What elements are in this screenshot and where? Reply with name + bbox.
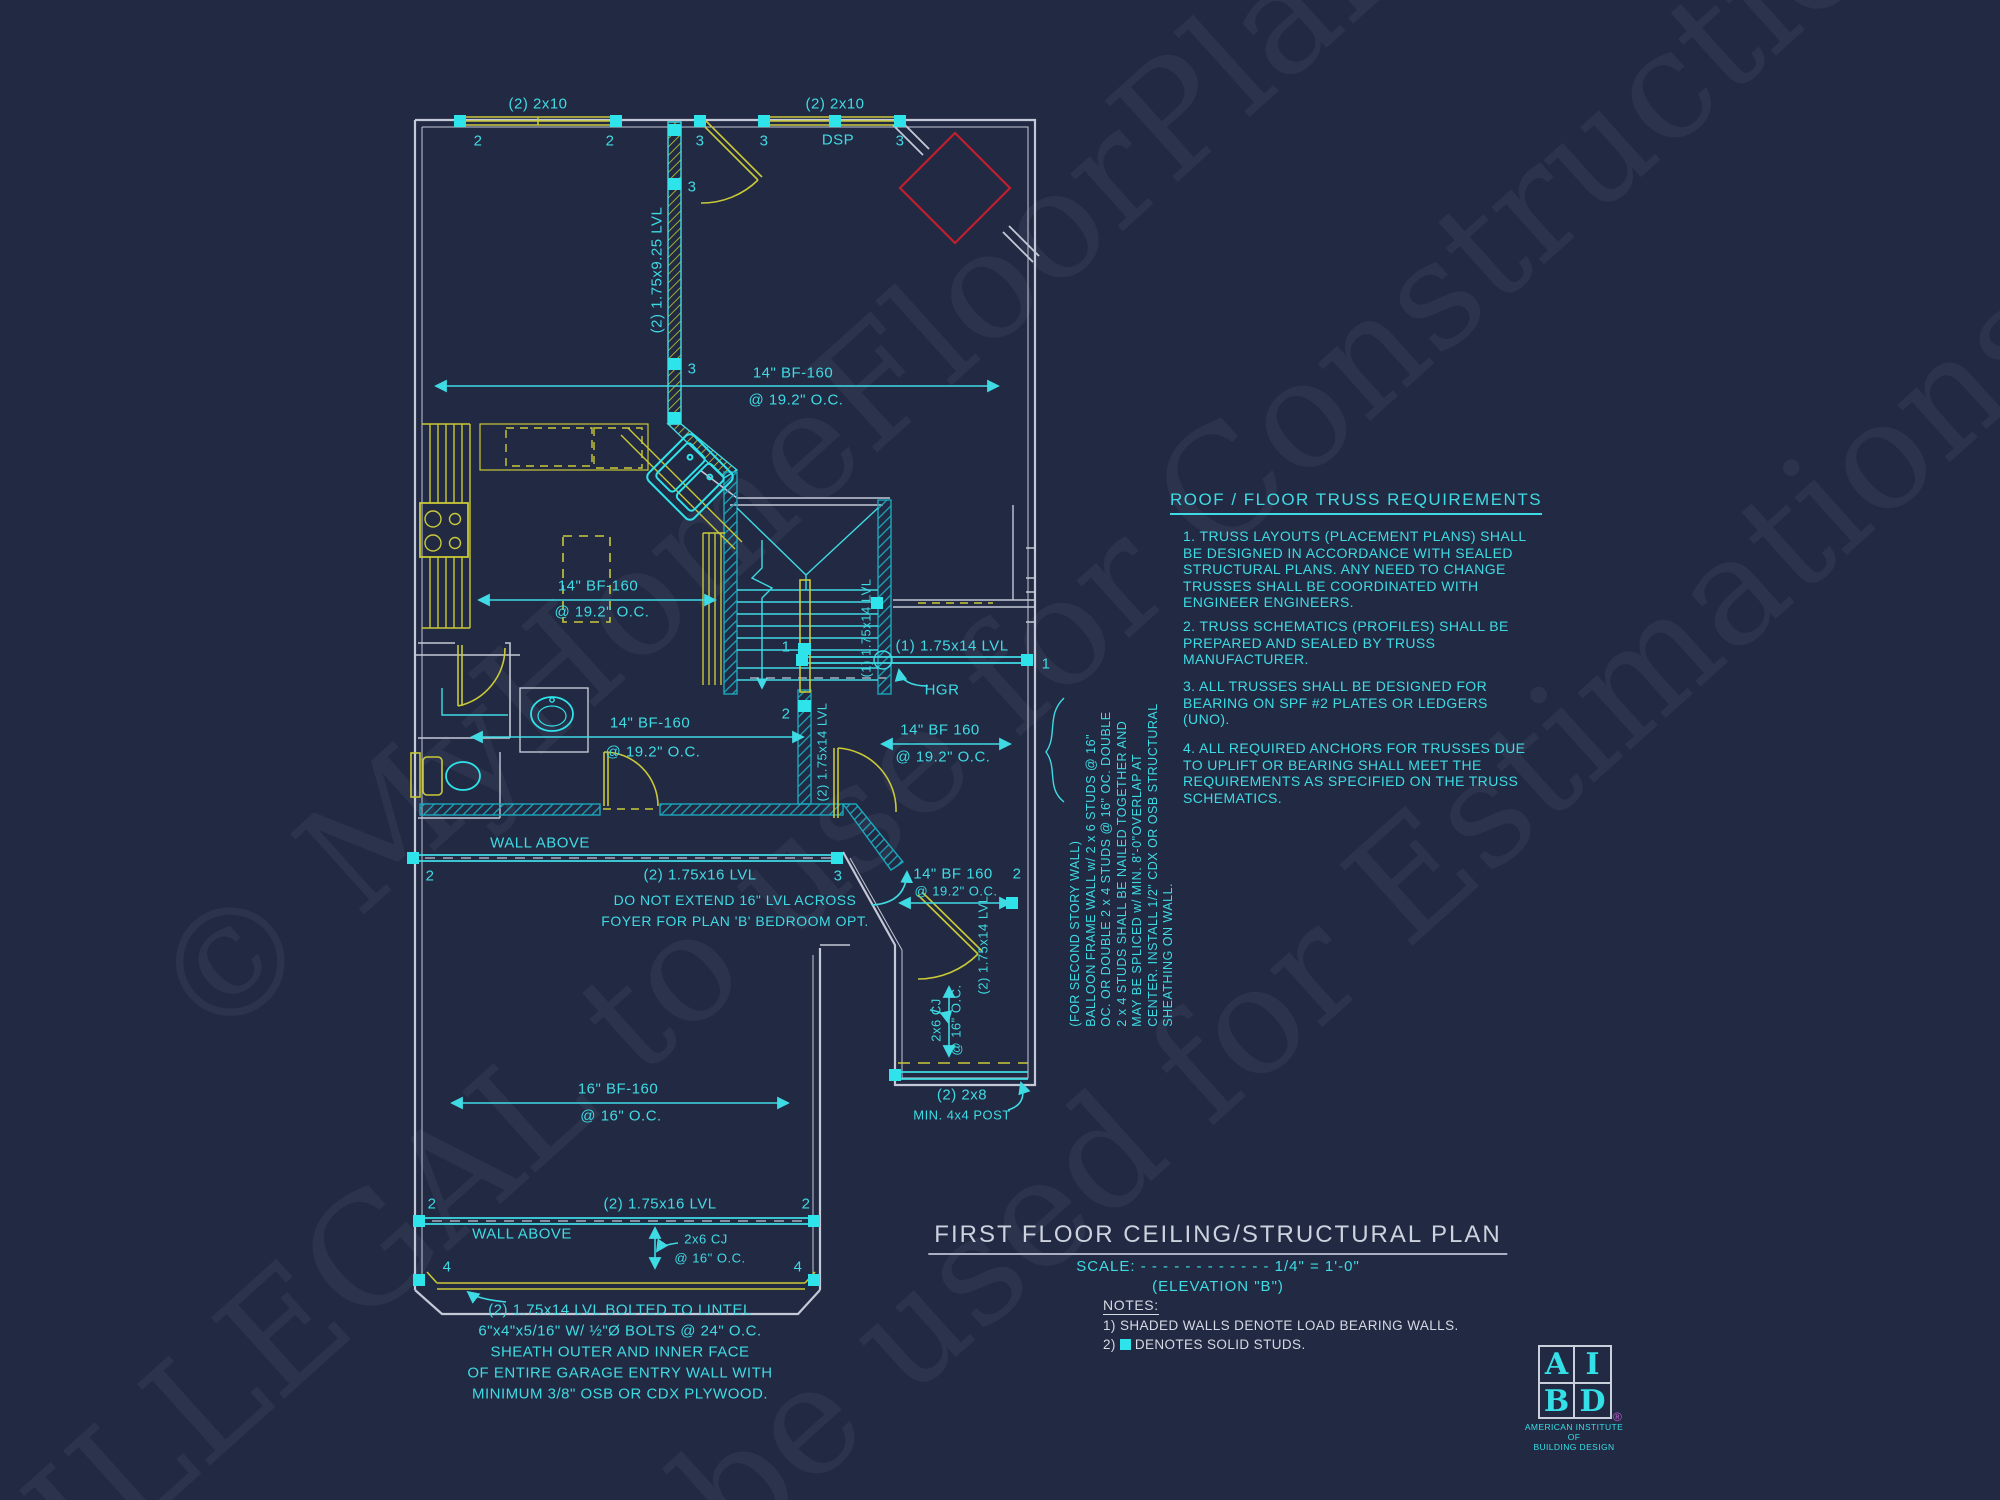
note-2-text: DENOTES SOLID STUDS. [1135, 1337, 1306, 1352]
label-lvl14-porch: (2) 1.75x14 LVL [976, 895, 991, 994]
marker: 2 [428, 1196, 437, 1213]
marker: 1 [1042, 656, 1051, 673]
truss-requirement-4: 4. ALL REQUIRED ANCHORS FOR TRUSSES DUE … [1183, 740, 1623, 806]
label-garage-callout: (2) 1.75x14 LVL BOLTED TO LINTEL 6"x4"x5… [467, 1300, 772, 1405]
marker: 3 [896, 133, 905, 150]
truss-requirement-3: 3. ALL TRUSSES SHALL BE DESIGNED FOR BEA… [1183, 678, 1623, 728]
label-dim4: 14" BF 160 [900, 722, 980, 739]
label-cj-porch: 2x6 CJ [929, 998, 944, 1041]
label-dim1: 14" BF-160 [753, 365, 833, 382]
solid-stud-swatch [1120, 1339, 1131, 1350]
note-1: 1) SHADED WALLS DENOTE LOAD BEARING WALL… [1103, 1318, 1459, 1333]
marker: 4 [443, 1259, 452, 1276]
logo-letter-i: I [1575, 1347, 1610, 1384]
page-title: FIRST FLOOR CEILING/STRUCTURAL PLAN [928, 1221, 1507, 1255]
notes-heading: NOTES: [1103, 1297, 1159, 1315]
label-post: MIN. 4x4 POST [913, 1108, 1011, 1123]
marker: 2 [1013, 866, 1022, 883]
marker: 2 [802, 1196, 811, 1213]
label-wall-above-1: WALL ABOVE [490, 835, 590, 852]
label-dim1: @ 19.2" O.C. [749, 392, 844, 409]
marker: 3 [696, 133, 705, 150]
label-do-not-extend: DO NOT EXTEND 16" LVL ACROSS FOYER FOR P… [601, 890, 868, 932]
label-cj-garage: @ 16" O.C. [674, 1251, 745, 1266]
label-lvl14-horiz: (1) 1.75x14 LVL [895, 638, 1008, 655]
note-2: 2)DENOTES SOLID STUDS. [1103, 1337, 1306, 1352]
label-dim3: 14" BF-160 [610, 715, 690, 732]
marker: 1 [782, 639, 791, 656]
marker: 2 [606, 133, 615, 150]
label-lvl14-hall: (2) 1.75x14 LVL [815, 702, 830, 801]
marker: 3 [688, 361, 697, 378]
label-dim5: 14" BF 160 [913, 866, 993, 883]
label-wall-above-2: WALL ABOVE [472, 1226, 572, 1243]
label-dim2: 14" BF-160 [558, 578, 638, 595]
kitchen [420, 424, 742, 685]
truss-requirement-1: 1. TRUSS LAYOUTS (PLACEMENT PLANS) SHALL… [1183, 528, 1623, 611]
label-dsp: DSP [822, 132, 854, 149]
bath-fixtures [411, 688, 573, 797]
logo-letter-d: D [1575, 1384, 1610, 1419]
truss-requirements-heading: ROOF / FLOOR TRUSS REQUIREMENTS [1170, 490, 1542, 515]
aibd-logo: A I B D [1538, 1345, 1612, 1419]
label-lvl14-stair: (1) 1.75x14 LVL [859, 578, 874, 677]
blueprint-page: © MyHomeFloorPlans.com ILLEGAL to use fo… [0, 0, 2000, 1500]
marker: 4 [794, 1259, 803, 1276]
label-2x8: (2) 2x8 [937, 1087, 987, 1104]
walls [415, 119, 1039, 1314]
logo-letter-a: A [1540, 1347, 1575, 1384]
marker: 3 [760, 133, 769, 150]
label-hgr: HGR [925, 682, 960, 699]
marker: 3 [688, 179, 697, 196]
label-dim2: @ 19.2" O.C. [555, 604, 650, 621]
label-dim6: @ 16" O.C. [580, 1108, 661, 1125]
note-2-prefix: 2) [1103, 1337, 1116, 1352]
label-beam-right: (2) 2x10 [805, 96, 864, 113]
label-lvl-925: (2) 1.75x9.25 LVL [649, 207, 666, 334]
label-dim3: @ 19.2" O.C. [606, 744, 701, 761]
label-beam-left: (2) 2x10 [508, 96, 567, 113]
logo-letter-b: B [1540, 1384, 1575, 1419]
logo-org-name: AMERICAN INSTITUTE OF BUILDING DESIGN [1514, 1422, 1634, 1452]
label-cj-porch: @ 16" O.C. [949, 984, 964, 1055]
floor-plan-drawing [0, 0, 2000, 1500]
label-cj-garage: 2x6 CJ [684, 1232, 727, 1247]
label-dim6: 16" BF-160 [578, 1081, 658, 1098]
stair-newel [800, 580, 810, 692]
label-lvl16-1: (2) 1.75x16 LVL [643, 867, 756, 884]
scale-note: SCALE: - - - - - - - - - - - - 1/4" = 1'… [1076, 1258, 1360, 1275]
label-dim4: @ 19.2" O.C. [896, 749, 991, 766]
marker: 2 [426, 868, 435, 885]
marker: 2 [474, 133, 483, 150]
marker: 3 [834, 868, 843, 885]
label-balloon-frame-note: (FOR SECOND STORY WALL) BALLOON FRAME WA… [1068, 703, 1177, 1026]
marker: 2 [782, 706, 791, 723]
label-lvl16-2: (2) 1.75x16 LVL [603, 1196, 716, 1213]
truss-requirement-2: 2. TRUSS SCHEMATICS (PROFILES) SHALL BE … [1183, 618, 1623, 668]
elevation-note: (ELEVATION "B") [1152, 1278, 1284, 1295]
